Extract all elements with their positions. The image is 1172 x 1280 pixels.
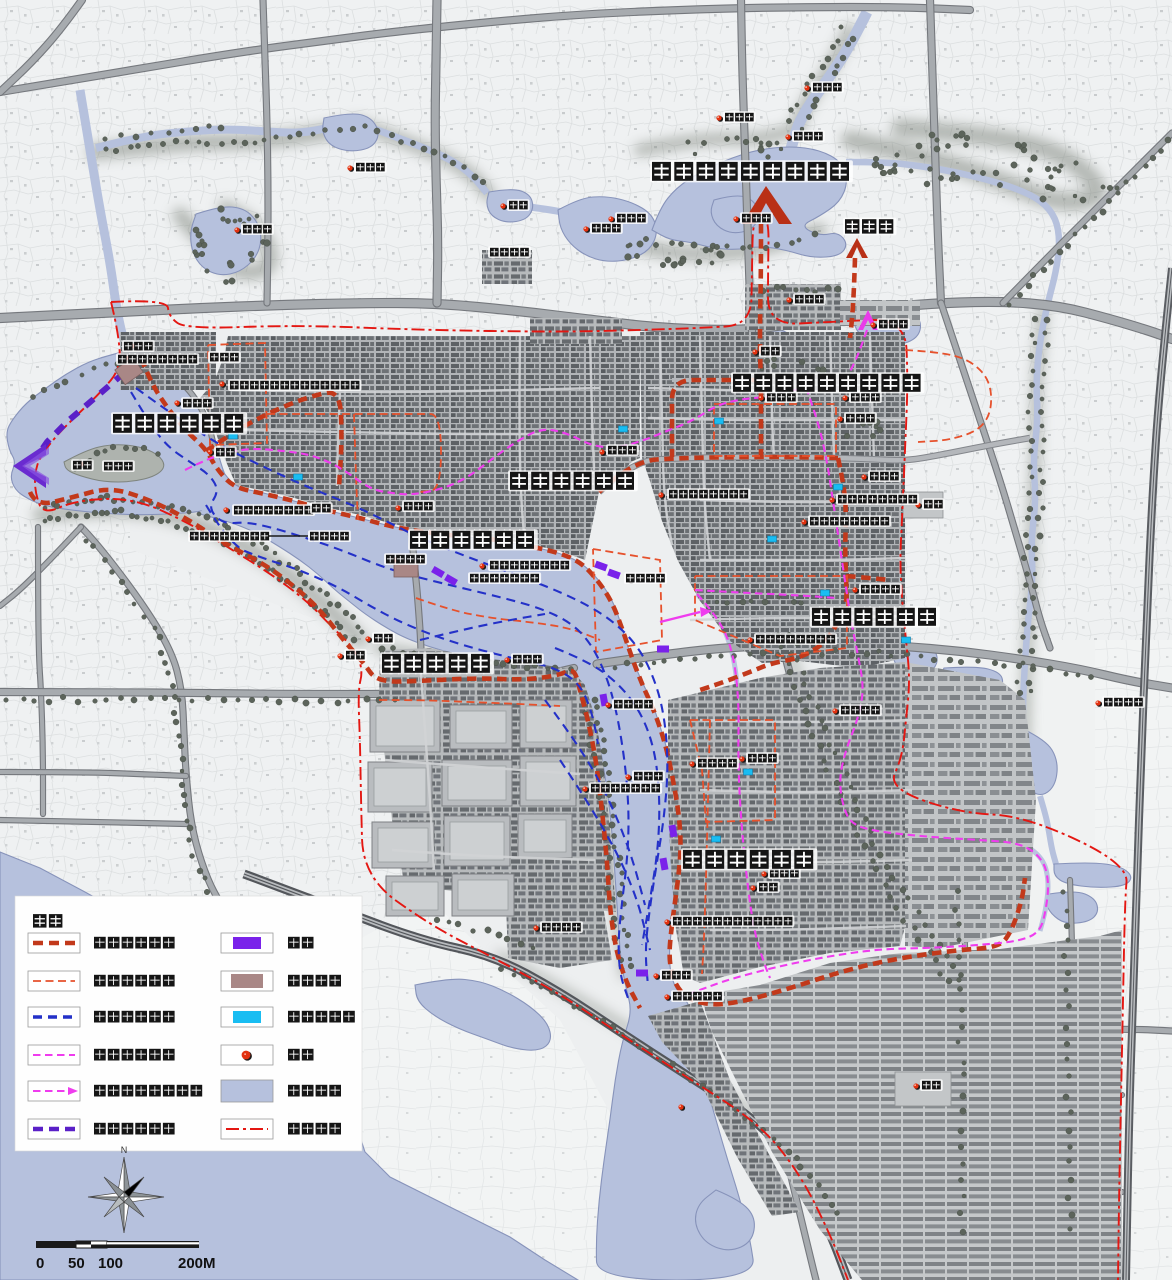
svg-text:0: 0: [36, 1255, 44, 1272]
svg-text:N: N: [121, 1145, 128, 1155]
svg-text:100: 100: [98, 1255, 123, 1272]
svg-text:50: 50: [68, 1255, 85, 1272]
svg-text:200M: 200M: [178, 1255, 216, 1272]
